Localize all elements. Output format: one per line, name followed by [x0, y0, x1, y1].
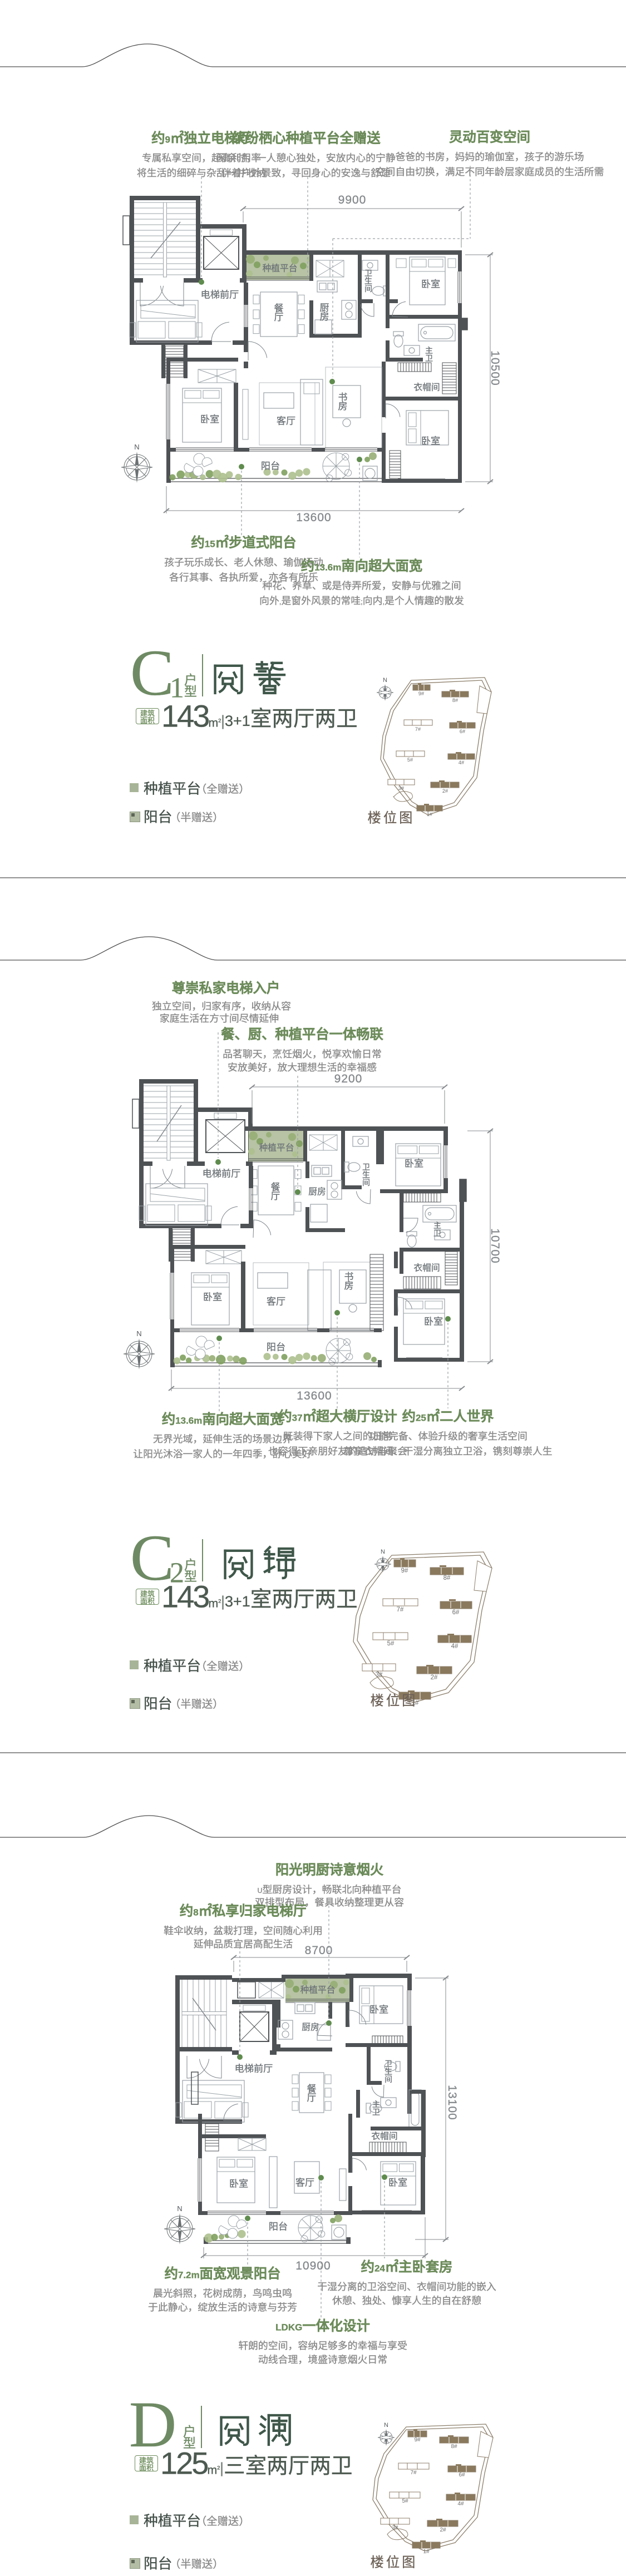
svg-text:8#: 8#: [451, 2444, 457, 2450]
svg-text:4#: 4#: [457, 2501, 464, 2507]
svg-text:5#: 5#: [387, 1640, 395, 1647]
svg-text:9#: 9#: [414, 2437, 421, 2443]
svg-text:3#: 3#: [376, 1672, 383, 1678]
svg-text:N: N: [384, 2422, 388, 2429]
svg-text:N: N: [177, 2204, 182, 2213]
svg-text:7#: 7#: [410, 2470, 417, 2476]
svg-text:1#: 1#: [427, 812, 433, 817]
svg-text:2#: 2#: [440, 2527, 446, 2533]
svg-text:2#: 2#: [431, 1674, 438, 1681]
svg-text:8#: 8#: [452, 698, 459, 703]
svg-text:N: N: [383, 677, 387, 684]
svg-text:9#: 9#: [418, 691, 425, 696]
svg-text:2#: 2#: [442, 788, 448, 794]
svg-text:4#: 4#: [451, 1643, 459, 1650]
svg-text:8#: 8#: [443, 1575, 451, 1581]
svg-text:9#: 9#: [401, 1568, 408, 1574]
svg-text:7#: 7#: [397, 1606, 404, 1613]
svg-text:7#: 7#: [415, 726, 421, 732]
svg-text:N: N: [134, 443, 139, 451]
svg-text:4#: 4#: [459, 760, 465, 765]
svg-text:6#: 6#: [459, 2472, 465, 2478]
svg-text:N: N: [136, 1329, 141, 1338]
svg-text:5#: 5#: [407, 757, 413, 763]
svg-text:1#: 1#: [423, 2549, 430, 2555]
svg-text:6#: 6#: [460, 729, 466, 734]
svg-text:6#: 6#: [452, 1609, 460, 1616]
svg-text:N: N: [381, 1549, 385, 1555]
svg-text:3#: 3#: [398, 785, 405, 791]
svg-text:5#: 5#: [402, 2498, 408, 2504]
